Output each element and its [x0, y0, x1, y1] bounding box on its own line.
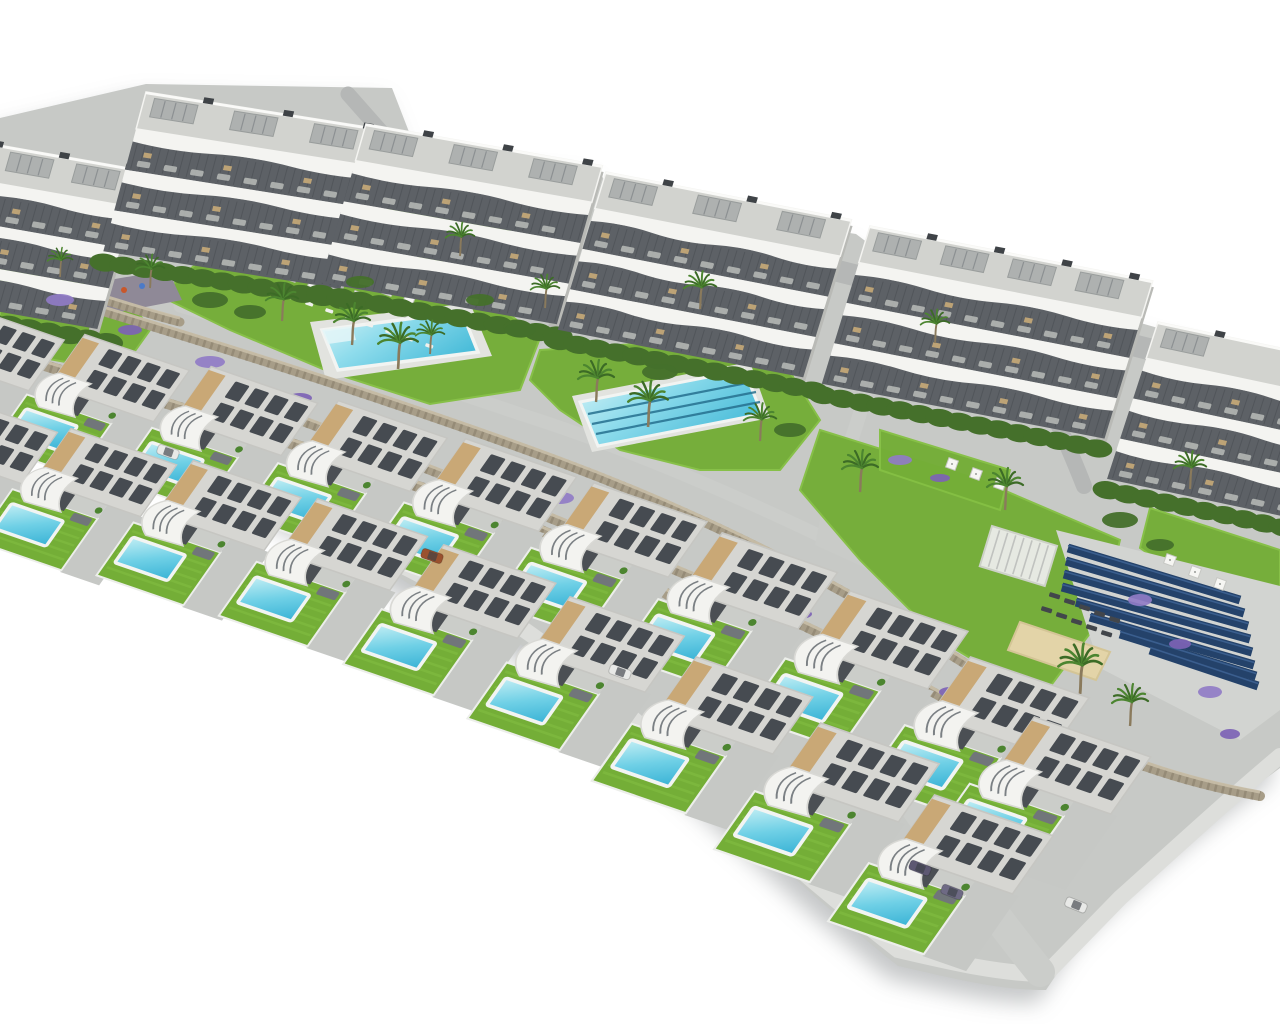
hedge: [466, 294, 494, 306]
lavender-bush: [1128, 594, 1152, 606]
lavender-bush: [1198, 686, 1222, 698]
lavender-bush: [930, 474, 950, 482]
lavender-bush: [118, 325, 142, 335]
hedge: [1146, 539, 1174, 551]
hedge: [346, 276, 374, 288]
lavender-bush: [195, 356, 225, 368]
hedge: [642, 364, 678, 380]
lavender-bush: [1220, 729, 1240, 739]
play-equipment: [121, 287, 127, 293]
hedge: [774, 423, 806, 437]
hedge: [1102, 512, 1138, 528]
hedge: [234, 305, 266, 319]
lavender-bush: [46, 294, 74, 306]
architectural-rendering: [0, 0, 1280, 1024]
hedge: [192, 292, 228, 308]
play-equipment: [139, 283, 145, 289]
hedge: [504, 323, 536, 337]
scene-canvas: [0, 0, 1280, 1024]
lavender-bush: [1169, 639, 1191, 649]
lavender-bush: [888, 455, 912, 465]
